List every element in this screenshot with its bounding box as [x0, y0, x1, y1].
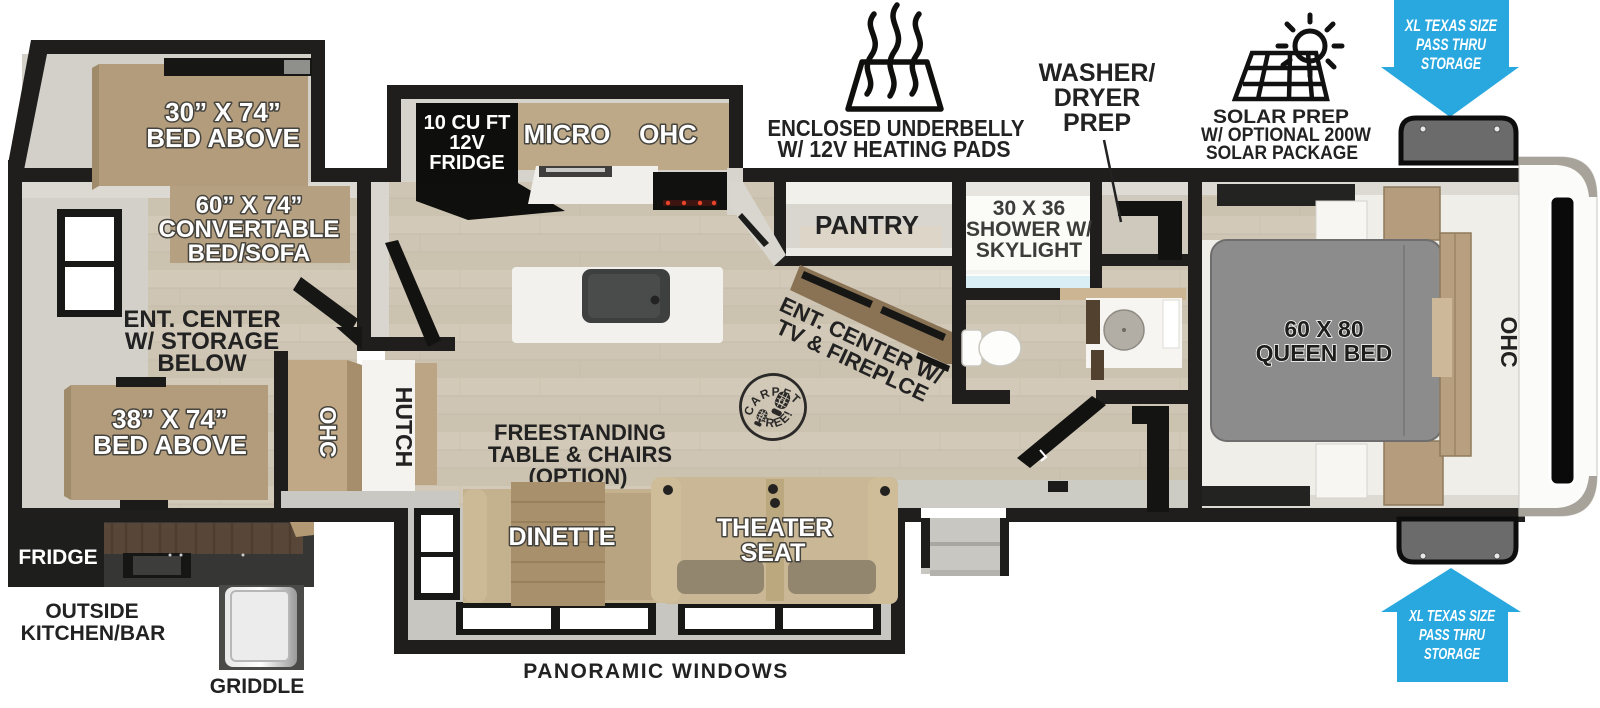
svg-text:PASS THRU: PASS THRU [1416, 35, 1487, 54]
svg-text:60” X 74”: 60” X 74” [196, 192, 303, 219]
svg-text:PREP: PREP [1063, 109, 1131, 137]
svg-text:STORAGE: STORAGE [1421, 54, 1481, 73]
svg-text:PANORAMIC WINDOWS: PANORAMIC WINDOWS [523, 660, 788, 683]
svg-text:BELOW: BELOW [157, 350, 247, 377]
svg-text:60 X 80: 60 X 80 [1284, 316, 1363, 342]
svg-text:OHC: OHC [1496, 316, 1522, 367]
svg-text:BED ABOVE: BED ABOVE [146, 123, 300, 153]
svg-text:PANTRY: PANTRY [815, 210, 919, 240]
svg-text:SHOWER W/: SHOWER W/ [966, 218, 1092, 241]
svg-text:SKYLIGHT: SKYLIGHT [976, 239, 1082, 262]
svg-text:KITCHEN/BAR: KITCHEN/BAR [21, 622, 166, 645]
svg-text:QUEEN BED: QUEEN BED [1256, 340, 1393, 366]
svg-text:DINETTE: DINETTE [509, 523, 616, 551]
svg-text:FRIDGE: FRIDGE [18, 546, 97, 569]
svg-text:SOLAR PACKAGE: SOLAR PACKAGE [1206, 143, 1358, 164]
svg-text:W/ 12V HEATING PADS: W/ 12V HEATING PADS [778, 136, 1011, 162]
svg-text:30 X 36: 30 X 36 [993, 197, 1065, 220]
svg-text:12V: 12V [449, 132, 485, 154]
svg-text:XL TEXAS SIZE: XL TEXAS SIZE [1404, 16, 1497, 35]
svg-text:STORAGE: STORAGE [1424, 646, 1481, 663]
svg-text:HUTCH: HUTCH [391, 387, 417, 468]
svg-text:OUTSIDE: OUTSIDE [45, 600, 138, 623]
svg-text:OHC: OHC [639, 119, 697, 149]
svg-text:OHC: OHC [315, 406, 341, 457]
svg-text:THEATER: THEATER [717, 514, 833, 542]
svg-text:CONVERTABLE: CONVERTABLE [159, 216, 340, 243]
svg-text:MICRO: MICRO [524, 119, 611, 149]
svg-text:GRIDDLE: GRIDDLE [210, 675, 305, 698]
svg-text:SEAT: SEAT [741, 539, 806, 567]
svg-text:BED ABOVE: BED ABOVE [93, 430, 247, 460]
svg-text:DRYER: DRYER [1054, 84, 1141, 112]
svg-text:10 CU FT: 10 CU FT [424, 112, 511, 134]
svg-text:BED/SOFA: BED/SOFA [188, 240, 311, 267]
svg-text:PASS THRU: PASS THRU [1419, 627, 1485, 644]
svg-text:XL TEXAS SIZE: XL TEXAS SIZE [1408, 608, 1496, 625]
svg-text:FRIDGE: FRIDGE [429, 152, 505, 174]
svg-text:WASHER/: WASHER/ [1039, 59, 1156, 87]
